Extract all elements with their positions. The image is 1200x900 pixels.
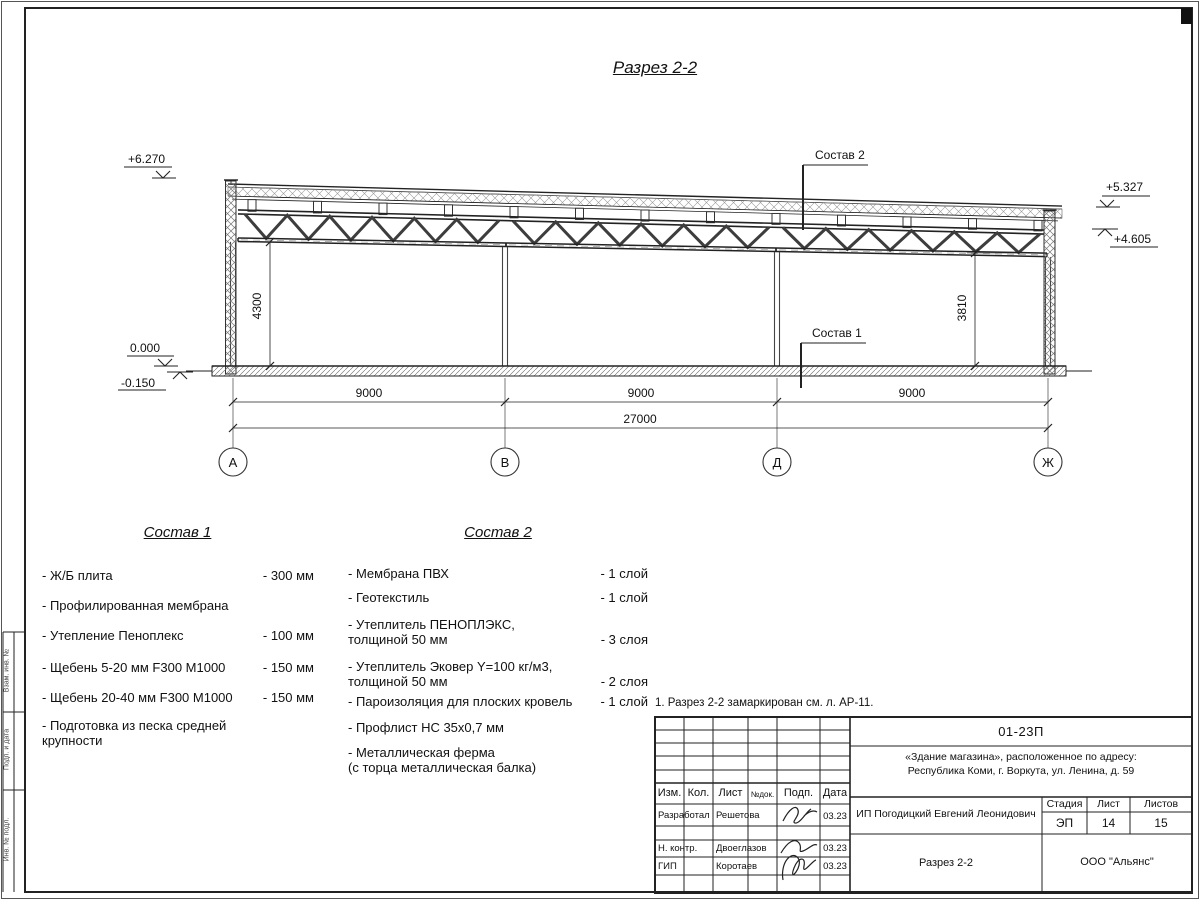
item-value: - 1 слой: [600, 694, 648, 709]
tb-doc-number: 01-23П: [850, 724, 1192, 739]
item-name: - Утеплитель Эковер Y=100 кг/м3, толщино…: [348, 659, 552, 689]
tb-stage-value: ЭП: [1042, 816, 1087, 830]
composition1-item: - Утепление Пеноплекс - 100 мм: [42, 628, 314, 643]
tb-stage-label: Стадия: [1042, 798, 1087, 810]
item-value: - 3 слоя: [601, 632, 648, 647]
tb-role: Разработал: [658, 810, 710, 821]
tb-organization: ООО "Альянс": [1042, 856, 1192, 868]
drawing-note: 1. Разрез 2-2 замаркирован см. л. АР-11.: [655, 697, 873, 709]
dim-span-2: 9000: [628, 386, 655, 400]
item-value: - 150 мм: [263, 660, 314, 675]
composition1-item: - Подготовка из песка средней крупности: [42, 718, 314, 748]
dim-span-1: 9000: [356, 386, 383, 400]
dim-span-3: 9000: [899, 386, 926, 400]
composition1-title: Состав 1: [60, 524, 295, 541]
composition2-item: - Металлическая ферма (с торца металличе…: [348, 745, 648, 775]
composition2-item: - Утеплитель Эковер Y=100 кг/м3, толщино…: [348, 659, 648, 689]
composition1-item: - Щебень 5-20 мм F300 М1000 - 150 мм: [42, 660, 314, 675]
tb-sheet-label: Лист: [1087, 798, 1130, 810]
callout-sostav-2: Состав 2: [815, 148, 865, 162]
item-name: - Геотекстиль: [348, 590, 429, 605]
axis-label-b: В: [501, 455, 510, 470]
tb-date: 03.23: [820, 811, 850, 822]
item-name: - Мембрана ПВХ: [348, 566, 449, 581]
dim-total: 27000: [623, 412, 657, 426]
composition2-item: - Мембрана ПВХ - 1 слой: [348, 566, 648, 581]
elevation-floor: 0.000: [130, 341, 160, 355]
tb-col-izm: Изм.: [655, 787, 684, 799]
composition1-item: - Ж/Б плита - 300 мм: [42, 568, 314, 583]
item-name: - Ж/Б плита: [42, 568, 113, 583]
tb-project-line2: Республика Коми, г. Воркута, ул. Ленина,…: [850, 765, 1192, 777]
tb-date: 03.23: [820, 843, 850, 854]
tb-col-list: Лист: [713, 787, 748, 799]
tb-role: ГИП: [658, 861, 677, 872]
elevation-roof-right-top: +5.327: [1106, 180, 1143, 194]
item-value: - 100 мм: [263, 628, 314, 643]
tb-sheet-value: 14: [1087, 816, 1130, 830]
tb-col-ndok: №док.: [748, 790, 777, 799]
tb-client: ИП Погодицкий Евгений Леонидович: [852, 808, 1040, 820]
composition2-item: - Профлист НС 35х0,7 мм: [348, 720, 648, 735]
tb-sheets-label: Листов: [1130, 798, 1192, 810]
axis-label-a: А: [229, 455, 238, 470]
elevation-roof-left: +6.270: [128, 152, 165, 166]
item-name: - Профилированная мембрана: [42, 598, 229, 613]
tb-sheet-title: Разрез 2-2: [852, 857, 1040, 869]
tb-name: Коротаев: [716, 861, 757, 872]
composition1-item: - Щебень 20-40 мм F300 М1000 - 150 мм: [42, 690, 314, 705]
item-name: - Щебень 5-20 мм F300 М1000: [42, 660, 225, 675]
tb-sheets-value: 15: [1130, 816, 1192, 830]
tb-project-line1: «Здание магазина», расположенное по адре…: [850, 751, 1192, 763]
item-name: - Подготовка из песка средней крупности: [42, 718, 226, 748]
item-name: - Утепление Пеноплекс: [42, 628, 184, 643]
axis-label-d: Д: [773, 455, 782, 470]
item-name: - Профлист НС 35х0,7 мм: [348, 720, 504, 735]
item-value: - 150 мм: [263, 690, 314, 705]
composition1-item: - Профилированная мембрана: [42, 598, 314, 613]
composition2-item: - Геотекстиль - 1 слой: [348, 590, 648, 605]
building-section: [186, 165, 1092, 388]
side-stamp-vzam: Взам. инв. №: [4, 631, 11, 711]
side-stamp-inv: Инв. № подл.: [4, 800, 11, 880]
composition2-item: - Пароизоляция для плоских кровель - 1 с…: [348, 694, 648, 709]
item-value: - 1 слой: [600, 590, 648, 605]
tb-name: Двоеглазов: [716, 843, 767, 854]
tb-date: 03.23: [820, 861, 850, 872]
side-stamp-podp: Подп. и дата: [4, 710, 11, 790]
item-value: - 1 слой: [600, 566, 648, 581]
elevation-ground: -0.150: [121, 376, 155, 390]
tb-col-podp: Подп.: [777, 787, 820, 799]
item-name: - Пароизоляция для плоских кровель: [348, 694, 572, 709]
composition2-title: Состав 2: [398, 524, 598, 541]
signatures: [781, 807, 817, 880]
composition2-item: - Утеплитель ПЕНОПЛЭКС, толщиной 50 мм -…: [348, 617, 648, 647]
callout-sostav-1: Состав 1: [812, 326, 862, 340]
tb-role: Н. контр.: [658, 843, 697, 854]
tb-name: Решетова: [716, 810, 760, 821]
item-name: - Утеплитель ПЕНОПЛЭКС, толщиной 50 мм: [348, 617, 515, 647]
sheet-title: Разрез 2-2: [545, 58, 765, 78]
axis-label-zh: Ж: [1042, 455, 1054, 470]
elevation-roof-right-bottom: +4.605: [1114, 232, 1151, 246]
dim-height-right: 3810: [955, 294, 969, 321]
tb-col-kol: Кол.: [684, 787, 713, 799]
dim-height-left: 4300: [250, 292, 264, 319]
item-name: - Щебень 20-40 мм F300 М1000: [42, 690, 233, 705]
tb-col-data: Дата: [820, 787, 850, 799]
item-value: - 300 мм: [263, 568, 314, 583]
drawing-sheet: +6.270 +5.327 +4.605 0.000 -0.150 4300 3…: [0, 0, 1200, 900]
item-name: - Металлическая ферма (с торца металличе…: [348, 745, 536, 775]
item-value: - 2 слоя: [601, 674, 648, 689]
